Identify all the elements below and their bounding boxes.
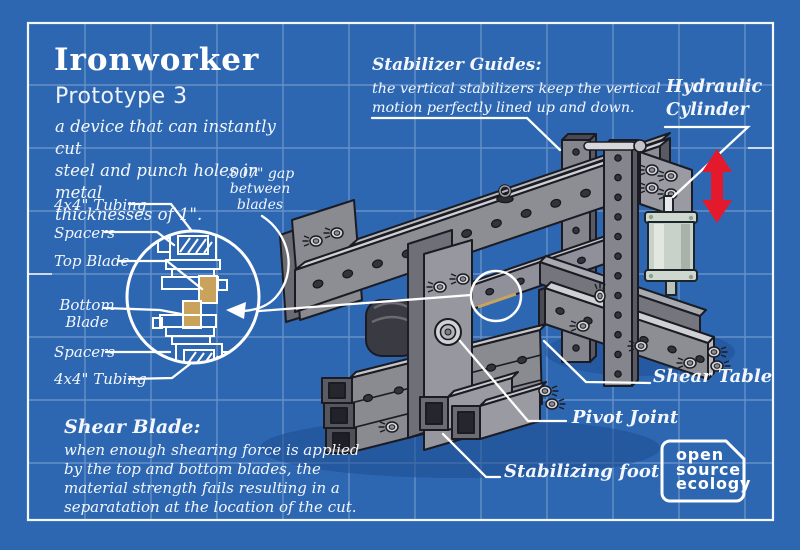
poster-title: Ironworker bbox=[54, 42, 259, 78]
vertical-motion-arrow bbox=[702, 149, 732, 223]
gap-note: .007" gap between blades bbox=[210, 167, 310, 213]
guide-pin bbox=[584, 140, 646, 152]
stabilizer-guides-title: Stabilizer Guides: bbox=[372, 55, 542, 75]
stabilizing-foot-label: Stabilizing foot bbox=[504, 461, 659, 482]
gap-arrowhead bbox=[226, 302, 246, 319]
pivot-joint-label: Pivot Joint bbox=[572, 407, 678, 428]
label-tubing-bottom: 4x4" Tubing bbox=[54, 370, 147, 388]
stabilizer-guides-body: the vertical stabilizers keep the vertic… bbox=[372, 80, 661, 118]
label-spacers-top: Spacers bbox=[54, 224, 115, 242]
label-bottom-blade: Bottom Blade bbox=[54, 297, 120, 332]
blueprint-poster: Ironworker Prototype 3 a device that can… bbox=[0, 0, 800, 550]
label-spacers-bottom: Spacers bbox=[54, 343, 115, 361]
shear-blade-title: Shear Blade: bbox=[64, 416, 201, 438]
label-tubing-top: 4x4" Tubing bbox=[54, 196, 147, 214]
open-source-ecology-logo: open source ecology bbox=[676, 448, 751, 492]
spacers-top-leader bbox=[105, 232, 174, 245]
poster-subtitle: Prototype 3 bbox=[55, 84, 188, 109]
shear-table-label: Shear Table bbox=[653, 366, 772, 387]
stabilizer-leader bbox=[372, 118, 560, 150]
pivot-bolt bbox=[435, 319, 461, 345]
hydraulic-cylinder-label: Hydraulic Cylinder bbox=[666, 76, 762, 122]
shear-blade-body: when enough shearing force is applied by… bbox=[64, 441, 360, 517]
label-top-blade: Top Blade bbox=[54, 252, 129, 270]
